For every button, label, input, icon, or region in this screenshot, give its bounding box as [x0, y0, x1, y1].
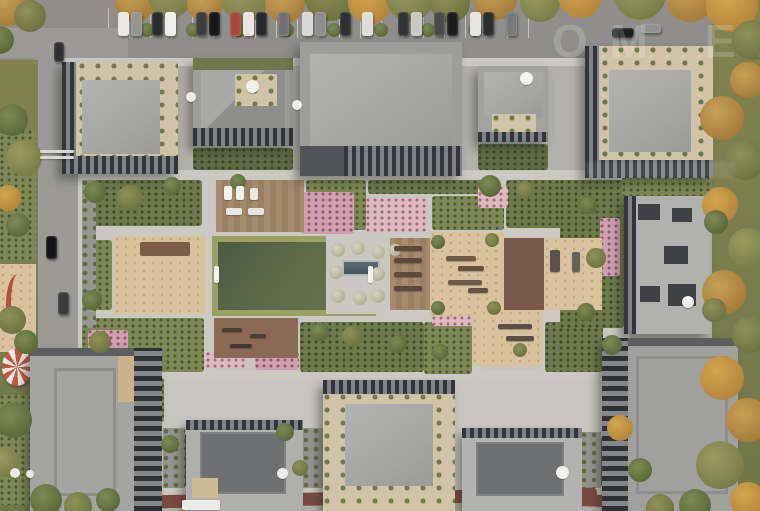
tree-green [311, 323, 329, 341]
tree-olive2 [513, 343, 527, 357]
planting-bed-pink [300, 192, 354, 234]
planting-bed-g1 [545, 322, 603, 372]
site-furniture [222, 328, 242, 332]
site-furniture [250, 188, 258, 200]
car [411, 12, 422, 36]
umbrella [246, 80, 259, 93]
facade-south [478, 132, 548, 142]
facade-north [323, 380, 455, 394]
car [131, 12, 142, 36]
tree-olive2 [485, 233, 499, 247]
tree-pale [353, 291, 367, 305]
site-furniture [394, 272, 422, 277]
car [196, 12, 207, 36]
site-furniture [40, 156, 74, 159]
aerial-render-canvas: ОМ ЕА [0, 0, 760, 511]
car [278, 12, 289, 36]
car [46, 236, 57, 259]
site-furniture [498, 324, 532, 329]
tree-green [14, 330, 38, 354]
tree-autumn2 [607, 415, 633, 441]
tree-olive2 [89, 331, 111, 353]
tree-olive2 [702, 298, 726, 322]
roof [345, 404, 433, 486]
courtyard-wall [581, 432, 601, 488]
site-furniture [506, 336, 534, 341]
umbrella [186, 92, 196, 102]
car [230, 12, 241, 36]
site-furniture [40, 150, 74, 153]
building-top-right-center [478, 66, 548, 142]
site-furniture [572, 252, 580, 272]
tree-green [432, 344, 448, 360]
roof [609, 70, 691, 152]
tree-autumn2 [700, 356, 744, 400]
building-top-center [300, 42, 462, 176]
site-furniture [214, 266, 219, 283]
planting-bed-hedge [478, 144, 548, 170]
building-top-2 [193, 58, 293, 146]
site-furniture [458, 266, 484, 271]
site-furniture [550, 250, 560, 272]
umbrella [682, 296, 694, 308]
site-furniture [182, 500, 220, 510]
facade-north [462, 428, 582, 438]
planting-bed-g1 [368, 180, 486, 194]
site-furniture [394, 286, 422, 291]
planting-bed-g2 [424, 322, 472, 374]
car [506, 12, 517, 36]
tree-pale [331, 243, 345, 257]
roof-terrace [492, 114, 536, 132]
play-structure [140, 242, 190, 256]
planting-bed-pink2 [432, 316, 474, 326]
tree-green [479, 175, 501, 197]
umbrella [556, 466, 569, 479]
car [470, 12, 481, 36]
tree-olive2 [586, 248, 606, 268]
car [434, 12, 445, 36]
car [152, 12, 163, 36]
facade-south-awnings [344, 146, 462, 176]
tree-pale [331, 289, 345, 303]
tree-green [96, 488, 120, 511]
site-furniture [230, 344, 252, 348]
car [256, 12, 267, 36]
roof-terrace [118, 354, 134, 402]
tree-olive [696, 441, 744, 489]
tree-green [431, 301, 445, 315]
facade-south [193, 128, 293, 146]
car [302, 12, 313, 36]
tree-olive2 [732, 317, 760, 353]
roof-terrace-cutout [640, 286, 660, 302]
tree-green [628, 458, 652, 482]
roof-terrace-cutout [664, 246, 688, 264]
umbrella [277, 468, 288, 479]
tree-green [602, 335, 622, 355]
roof-terrace-cutout [672, 208, 692, 222]
tree-green [82, 290, 102, 310]
tree-green [327, 23, 341, 37]
roof-terrace-cutout [638, 204, 660, 220]
tree-green [161, 435, 179, 453]
tree-green [30, 484, 62, 511]
building-top-left [62, 62, 178, 174]
umbrella [292, 100, 302, 110]
fitness-area [214, 318, 298, 358]
site-furniture [468, 288, 488, 293]
umbrella [26, 470, 34, 478]
tree-olive [728, 228, 760, 268]
tree-olive2 [516, 181, 534, 199]
site-furniture [448, 280, 482, 285]
tree-pale [371, 245, 385, 259]
site-furniture [394, 258, 422, 263]
tree-olive [6, 140, 42, 176]
courtyard-wall [303, 428, 323, 488]
tree-green [431, 235, 445, 249]
site-furniture [368, 266, 373, 283]
facade-notch [300, 146, 344, 176]
roof-outline [54, 368, 116, 496]
site-furniture [446, 256, 476, 261]
tree-autumn2 [730, 482, 760, 511]
planting-bed-g2 [622, 176, 712, 196]
tree-green [276, 423, 294, 441]
parapet [30, 348, 134, 356]
tree-olive2 [117, 185, 143, 211]
roof [310, 54, 452, 146]
facade-west [62, 62, 76, 156]
site-furniture [236, 186, 244, 200]
tree-olive2 [342, 326, 362, 346]
planting-bed-pink2 [366, 198, 426, 232]
tree-pale [371, 267, 385, 281]
parapet [628, 338, 738, 346]
car [315, 12, 326, 36]
playground-rubber-dark [504, 238, 544, 310]
umbrella [10, 468, 20, 478]
planting-bed-pink [600, 218, 620, 276]
building-bottom-center [323, 380, 455, 511]
tree-green [389, 335, 407, 353]
car [243, 12, 254, 36]
car [165, 12, 176, 36]
green-roof-strip [193, 58, 293, 70]
roof [484, 72, 542, 118]
car [209, 12, 220, 36]
watermark-blur-line [585, 162, 735, 178]
car [483, 12, 494, 36]
site-furniture [226, 208, 242, 215]
tree-olive2 [487, 301, 501, 315]
car [362, 12, 373, 36]
facade-east-balconies [134, 348, 162, 511]
car [58, 292, 69, 315]
planting-bed-hedge [193, 148, 293, 170]
umbrella [520, 72, 533, 85]
tree-autumn [700, 96, 744, 140]
site-furniture [224, 186, 232, 200]
car [118, 12, 129, 36]
watermark-text: ОМ ЕА [552, 14, 760, 68]
tree-pale [351, 241, 365, 255]
facade-south [62, 156, 178, 174]
car [340, 12, 351, 36]
site-furniture [394, 246, 422, 251]
car [398, 12, 409, 36]
tree-olive2 [14, 0, 46, 32]
car [447, 12, 458, 36]
roof-terrace [192, 478, 218, 498]
tree-pale [371, 289, 385, 303]
tree-green [579, 196, 597, 214]
site-furniture [248, 208, 264, 215]
tree-green [421, 23, 435, 37]
facade-west [624, 196, 636, 334]
tree-green [163, 177, 181, 195]
site-furniture [250, 334, 266, 338]
roof [476, 442, 564, 496]
roof [82, 80, 160, 154]
tree-green [84, 181, 106, 203]
car [54, 42, 64, 62]
tree-green [6, 213, 30, 237]
playground-sand-left [114, 236, 206, 314]
tree-green [374, 23, 388, 37]
tree-olive2 [292, 460, 308, 476]
building-right-middle [624, 196, 710, 334]
tree-green [577, 303, 595, 321]
tree-pale [329, 265, 343, 279]
tree-green [704, 210, 728, 234]
